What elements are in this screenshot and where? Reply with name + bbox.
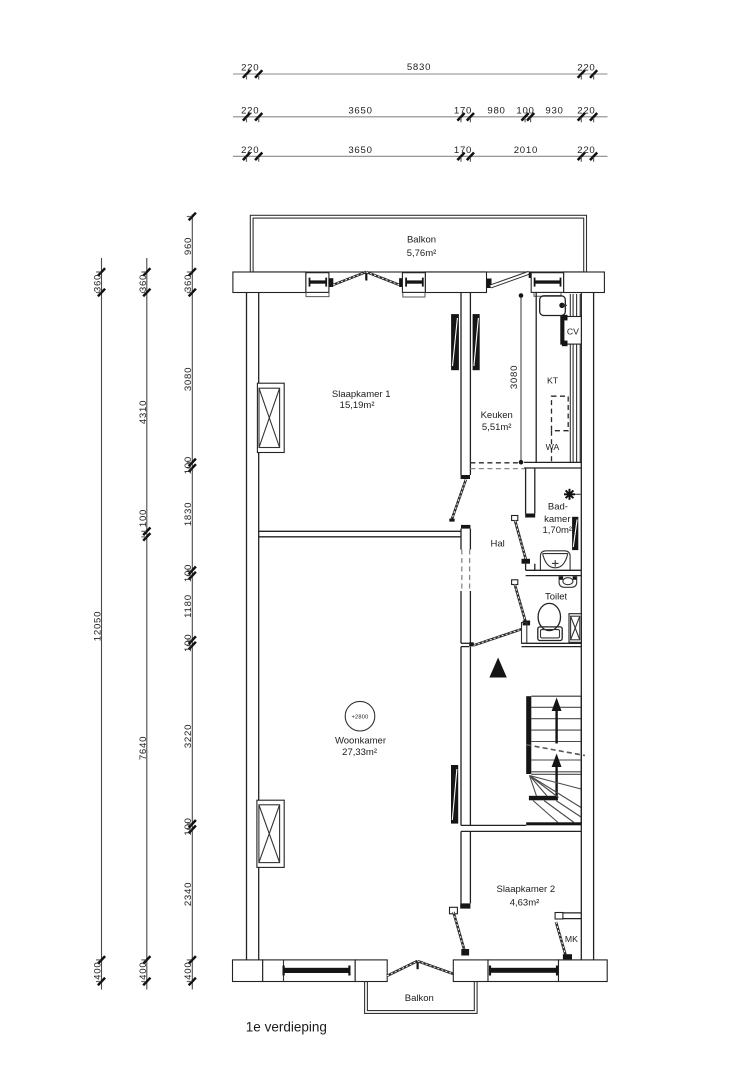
svg-text:930: 930 (545, 106, 563, 117)
svg-text:Hal: Hal (490, 539, 504, 550)
svg-text:360: 360 (93, 274, 104, 292)
svg-text:100: 100 (183, 564, 194, 582)
svg-text:Balkon: Balkon (405, 993, 434, 1004)
svg-text:Keuken: Keuken (481, 410, 513, 421)
svg-text:170: 170 (454, 106, 472, 117)
svg-text:7640: 7640 (138, 736, 149, 760)
svg-text:Slaapkamer 2: Slaapkamer 2 (496, 884, 555, 895)
svg-text:kamer: kamer (544, 514, 570, 525)
svg-text:27,33m²: 27,33m² (342, 747, 377, 758)
svg-text:KT: KT (547, 375, 559, 385)
svg-text:WA: WA (546, 442, 560, 452)
svg-text:Bad-: Bad- (548, 502, 568, 513)
svg-text:4,63m²: 4,63m² (510, 897, 540, 908)
svg-text:Balkon: Balkon (407, 235, 436, 246)
svg-text:220: 220 (577, 145, 595, 156)
svg-text:360: 360 (138, 274, 149, 292)
svg-text:100: 100 (138, 509, 149, 527)
svg-text:400: 400 (93, 962, 104, 980)
svg-text:Slaapkamer 1: Slaapkamer 1 (332, 389, 391, 400)
svg-text:1,70m²: 1,70m² (543, 525, 573, 536)
svg-text:960: 960 (183, 237, 194, 255)
svg-text:2010: 2010 (514, 145, 538, 156)
svg-text:220: 220 (577, 63, 595, 74)
svg-text:400: 400 (183, 962, 194, 980)
svg-text:2340: 2340 (183, 882, 194, 906)
svg-text:CV: CV (567, 326, 579, 336)
svg-text:15,19m²: 15,19m² (340, 400, 375, 411)
svg-text:3080: 3080 (509, 365, 520, 389)
svg-text:220: 220 (241, 106, 259, 117)
svg-text:360: 360 (183, 274, 194, 292)
svg-text:12050: 12050 (93, 611, 104, 641)
svg-text:1830: 1830 (183, 502, 194, 526)
svg-text:220: 220 (241, 145, 259, 156)
svg-text:5,76m²: 5,76m² (407, 248, 437, 259)
svg-text:100: 100 (516, 106, 534, 117)
svg-text:Woonkamer: Woonkamer (335, 735, 386, 746)
svg-text:MK: MK (565, 934, 578, 944)
svg-text:1180: 1180 (183, 594, 194, 618)
svg-text:100: 100 (183, 817, 194, 835)
svg-text:220: 220 (577, 106, 595, 117)
svg-text:Toilet: Toilet (545, 592, 568, 603)
svg-text:3650: 3650 (348, 145, 372, 156)
svg-text:+2800: +2800 (352, 714, 369, 720)
svg-text:170: 170 (454, 145, 472, 156)
svg-text:980: 980 (487, 106, 505, 117)
svg-text:400: 400 (138, 962, 149, 980)
svg-text:5,51m²: 5,51m² (482, 422, 512, 433)
svg-text:5830: 5830 (407, 62, 431, 73)
svg-text:4310: 4310 (138, 400, 149, 424)
svg-text:220: 220 (241, 63, 259, 74)
svg-text:100: 100 (183, 456, 194, 474)
svg-text:100: 100 (183, 634, 194, 652)
svg-text:3220: 3220 (183, 724, 194, 748)
svg-text:3650: 3650 (348, 106, 372, 117)
svg-text:1e verdieping: 1e verdieping (246, 1020, 327, 1035)
svg-text:3080: 3080 (183, 367, 194, 391)
